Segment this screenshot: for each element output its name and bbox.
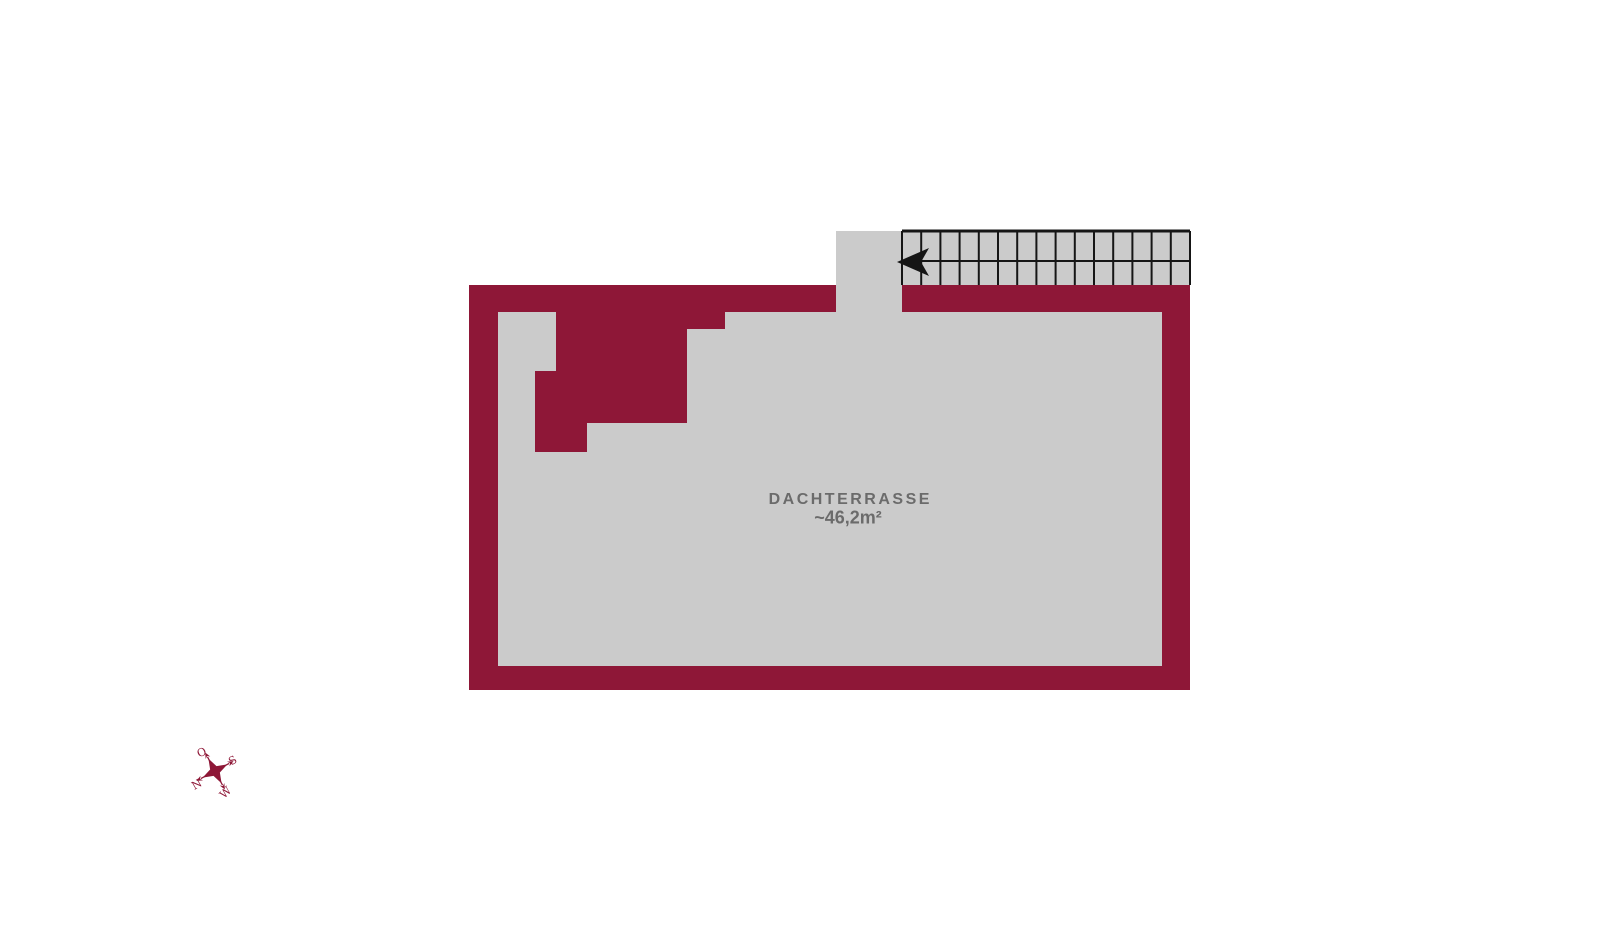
stair-landing [836, 231, 902, 312]
room-name-label: DACHTERRASSE [766, 491, 932, 509]
staircase-floor [902, 231, 1190, 285]
compass-label-south: S [226, 753, 239, 768]
compass-label-east: O [195, 745, 209, 761]
compass-label-west: W [217, 784, 235, 802]
staircase [897, 231, 1190, 285]
compass-label-north: N [189, 776, 204, 792]
room-area-label: ~46,2m² [814, 508, 882, 529]
floorplan-drawing: O S N W [0, 0, 1619, 943]
floorplan-canvas: O S N W DACHTERRASSE ~46,2m² [0, 0, 1619, 943]
compass-rose: O S N W [187, 743, 244, 802]
